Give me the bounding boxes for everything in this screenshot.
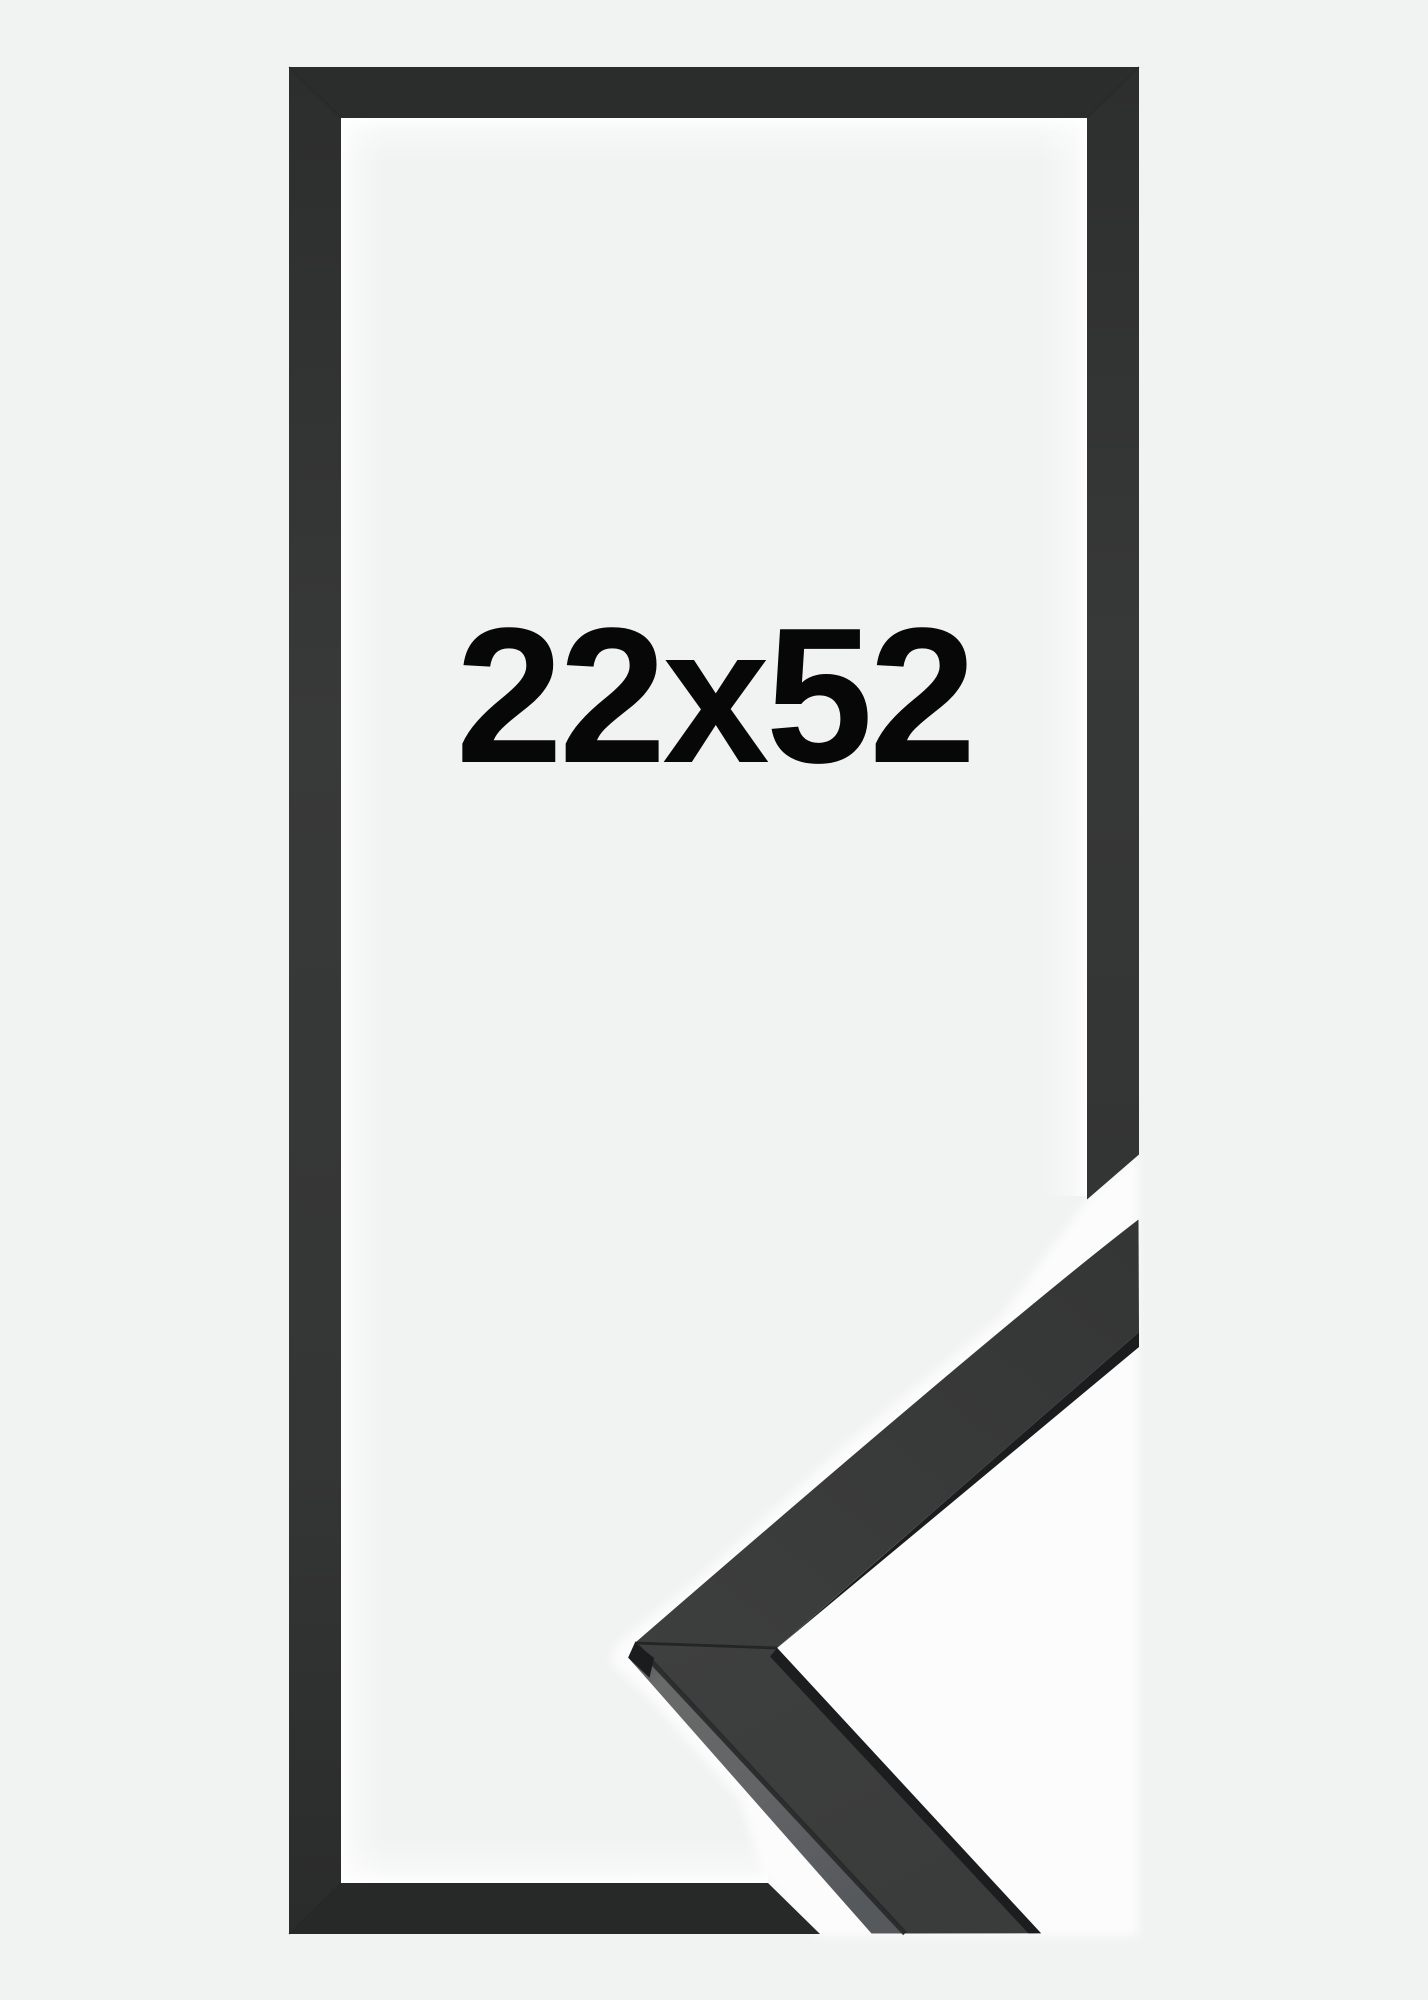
svg-text:22x52: 22x52 — [456, 587, 973, 803]
